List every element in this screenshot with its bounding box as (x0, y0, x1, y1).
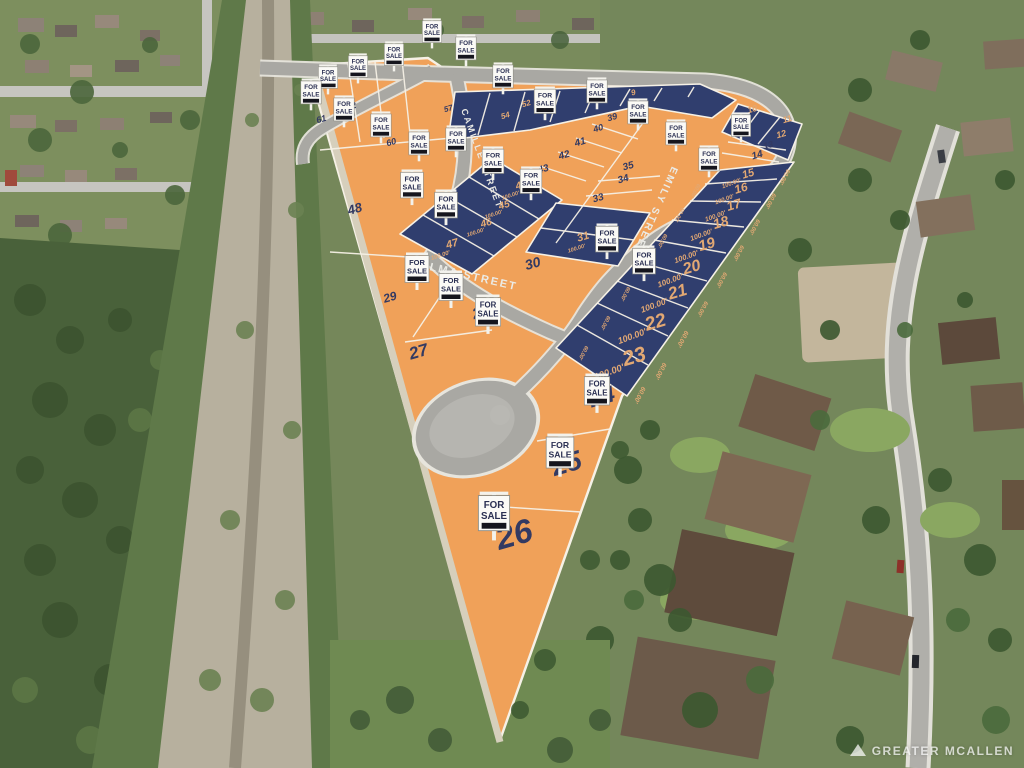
sign-line2: SALE (536, 100, 555, 107)
bottom-field (330, 640, 611, 768)
sign-line2: SALE (668, 132, 685, 139)
sign-line1: FOR (538, 93, 552, 100)
sign-line2: SALE (407, 267, 427, 276)
sign-line2: SALE (303, 91, 320, 98)
sign-line1: FOR (484, 500, 505, 511)
sign-line2: SALE (549, 450, 572, 460)
sign-line2: SALE (481, 511, 508, 522)
sign-line1: FOR (702, 151, 716, 158)
aerial-photo: 100.00'100.00'100.00'100.00'100.00'100.0… (0, 0, 1024, 768)
sign-line1: FOR (551, 440, 570, 450)
sign-line2: SALE (458, 47, 475, 54)
sign-line2: SALE (522, 180, 541, 187)
sign-line2: SALE (484, 160, 503, 167)
aerial-lot-map: 100.00'100.00'100.00'100.00'100.00'100.0… (0, 0, 1024, 768)
sign-line1: FOR (337, 101, 351, 108)
sign-line1: FOR (438, 195, 453, 203)
sign-line1: FOR (486, 153, 500, 160)
sign-line2: SALE (350, 66, 366, 72)
sign-line2: SALE (411, 142, 428, 149)
sign-line1: FOR (449, 131, 463, 138)
sign-line2: SALE (478, 310, 499, 319)
sign-line2: SALE (598, 237, 617, 245)
sign-line1: FOR (322, 70, 335, 76)
sign-line1: FOR (735, 118, 748, 124)
watermark: GREATER MCALLEN (850, 744, 1014, 758)
sign-line2: SALE (701, 158, 718, 165)
sign-line2: SALE (437, 203, 456, 211)
sign-line2: SALE (403, 183, 422, 191)
sign-line1: FOR (589, 380, 606, 389)
sign-line1: FOR (404, 175, 419, 183)
sign-line2: SALE (630, 111, 647, 118)
sign-line1: FOR (426, 24, 439, 30)
sign-line1: FOR (352, 59, 365, 65)
sign-line2: SALE (495, 75, 512, 82)
sign-line1: FOR (388, 47, 401, 53)
sign-line1: FOR (480, 301, 497, 310)
sign-line2: SALE (448, 138, 465, 145)
sign-line1: FOR (412, 135, 426, 142)
sign-line1: FOR (669, 125, 683, 132)
sign-line2: SALE (587, 389, 608, 398)
sign-line2: SALE (589, 90, 606, 97)
mountain-logo-icon (850, 745, 866, 757)
sign-line2: SALE (441, 285, 461, 294)
sign-line1: FOR (636, 251, 651, 259)
sign-line1: FOR (304, 84, 318, 91)
sign-line2: SALE (320, 77, 336, 83)
sign-line2: SALE (424, 31, 440, 37)
sign-line2: SALE (733, 125, 749, 131)
sign-line2: SALE (635, 259, 654, 267)
sign-line1: FOR (524, 173, 538, 180)
sign-line2: SALE (386, 54, 402, 60)
sign-line1: FOR (374, 117, 388, 124)
sign-line1: FOR (459, 40, 473, 47)
sign-line1: FOR (496, 68, 510, 75)
red-roof-house (5, 170, 17, 186)
watermark-text: GREATER MCALLEN (872, 744, 1014, 758)
sign-line2: SALE (373, 124, 390, 131)
sign-line1: FOR (590, 83, 604, 90)
sign-line1: FOR (599, 229, 614, 237)
sign-line1: FOR (631, 104, 645, 111)
sign-line2: SALE (336, 108, 353, 115)
